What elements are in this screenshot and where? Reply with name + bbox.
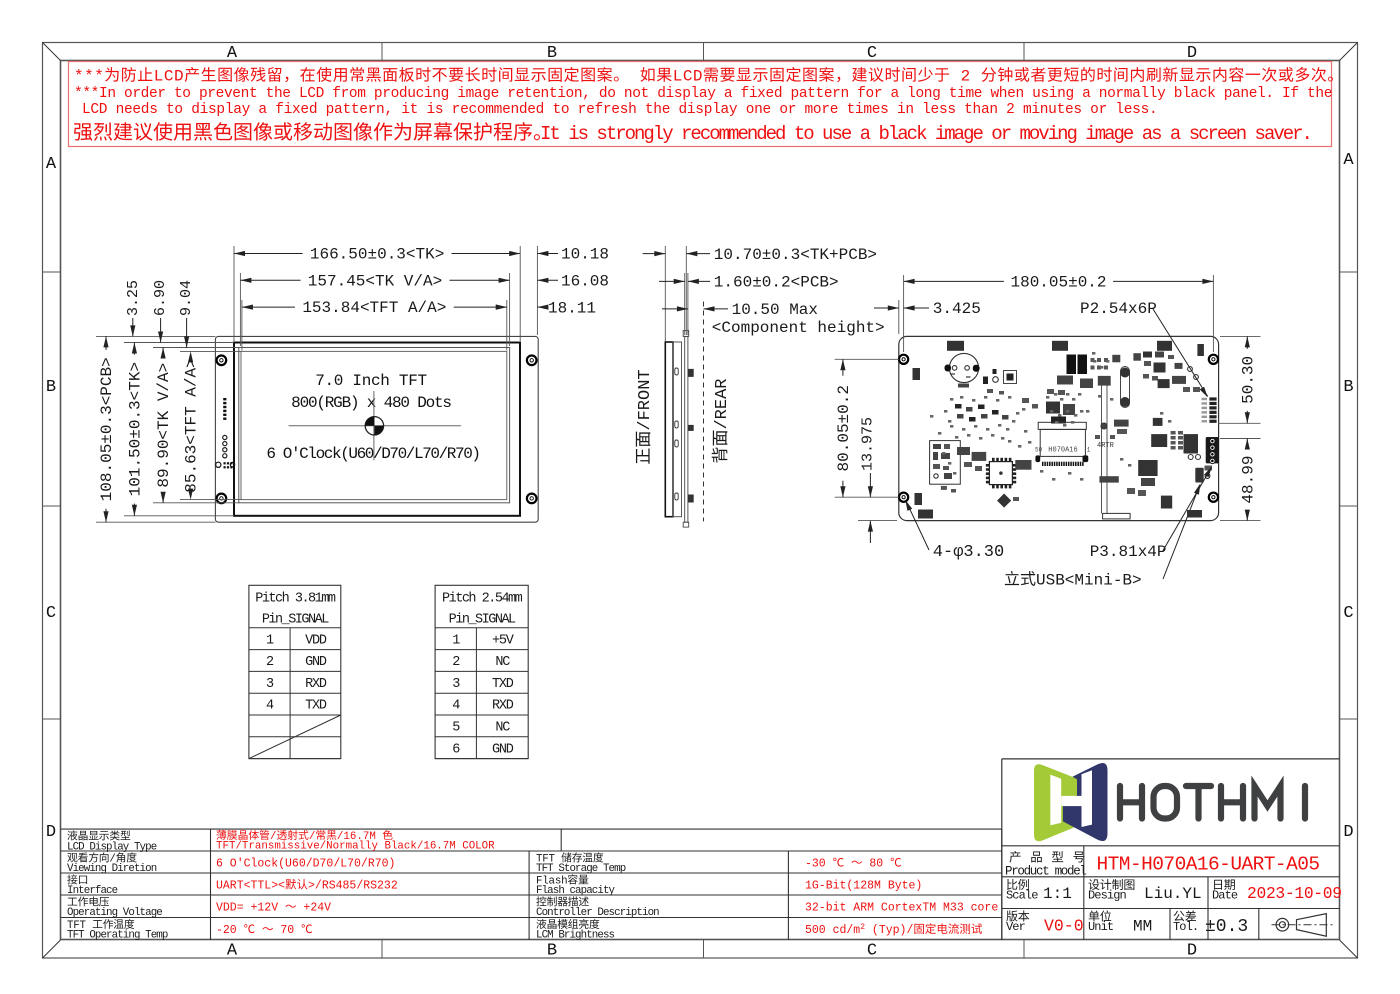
svg-text:D: D (46, 823, 56, 842)
svg-text:TXD: TXD (305, 699, 327, 714)
svg-text:±0.3: ±0.3 (1205, 917, 1248, 937)
svg-text:800(RGB) x 480 Dots: 800(RGB) x 480 Dots (291, 394, 451, 412)
svg-text:5: 5 (452, 721, 460, 736)
svg-text:V0-0: V0-0 (1044, 917, 1084, 936)
svg-text:9.04: 9.04 (178, 280, 195, 316)
svg-text:3: 3 (266, 677, 274, 692)
svg-text:6.90: 6.90 (152, 280, 169, 316)
svg-text:MM: MM (1133, 918, 1152, 936)
svg-text:6 O'Clock(U60/D70/L70/R70): 6 O'Clock(U60/D70/L70/R70) (266, 445, 479, 463)
svg-text:180.05±0.2: 180.05±0.2 (1010, 273, 1106, 291)
svg-text:1: 1 (1087, 447, 1091, 454)
svg-text:TXD: TXD (492, 677, 514, 692)
svg-text:Tol.: Tol. (1173, 920, 1198, 934)
svg-text:108.05±0.3<PCB>: 108.05±0.3<PCB> (98, 357, 116, 501)
svg-text:4: 4 (266, 699, 274, 714)
svg-text:C: C (46, 604, 56, 623)
svg-text:166.50±0.3<TK>: 166.50±0.3<TK> (310, 246, 444, 264)
svg-text:GND: GND (305, 655, 327, 670)
svg-text:3.25: 3.25 (125, 280, 142, 316)
svg-text:Interface: Interface (67, 885, 118, 897)
svg-text:A: A (227, 44, 238, 63)
svg-text:Ver: Ver (1006, 920, 1026, 934)
svg-text:NC: NC (495, 655, 510, 670)
svg-text:TFT/Transmissive/Normally Blac: TFT/Transmissive/Normally Black/16.7M CO… (216, 841, 495, 853)
svg-text:VDD: VDD (305, 633, 327, 648)
svg-text:1: 1 (266, 633, 274, 648)
svg-text:RXD: RXD (492, 699, 514, 714)
svg-text:立式USB<Mini-B>: 立式USB<Mini-B> (1004, 571, 1142, 590)
svg-text:2: 2 (452, 655, 460, 670)
svg-text:D: D (1187, 942, 1197, 961)
svg-text:Date: Date (1212, 889, 1238, 903)
svg-text:18.11: 18.11 (548, 299, 596, 317)
svg-text:89.90<TK V/A>: 89.90<TK V/A> (155, 363, 173, 488)
svg-text:32-bit ARM CortexTM M33 core: 32-bit ARM CortexTM M33 core (805, 902, 998, 915)
svg-text:10.70±0.3<TK+PCB>: 10.70±0.3<TK+PCB> (714, 246, 877, 264)
svg-text:7.0 Inch TFT: 7.0 Inch TFT (315, 372, 427, 390)
svg-text:TFT Storage Temp: TFT Storage Temp (536, 863, 626, 875)
svg-text:50: 50 (1035, 447, 1043, 454)
svg-text:VDD= +12V ～ +24V: VDD= +12V ～ +24V (216, 902, 331, 915)
svg-text:+5V: +5V (492, 633, 515, 648)
svg-text:2023-10-09: 2023-10-09 (1247, 884, 1342, 903)
svg-text:Pitch 2.54mm: Pitch 2.54mm (442, 592, 523, 607)
svg-text:D: D (1187, 44, 1197, 63)
svg-text:16.08: 16.08 (561, 273, 609, 291)
svg-text:Design: Design (1088, 889, 1127, 903)
svg-text:B: B (547, 44, 557, 63)
svg-text:RXD: RXD (305, 677, 327, 692)
svg-text:1.60±0.2<PCB>: 1.60±0.2<PCB> (714, 274, 839, 292)
svg-text:UART<TTL><默认>/RS485/RS232: UART<TTL><默认>/RS485/RS232 (216, 879, 398, 893)
svg-text:P2.54x6P: P2.54x6P (1080, 300, 1157, 318)
svg-text:1: 1 (452, 633, 460, 648)
svg-text:4RTR: 4RTR (1097, 442, 1115, 450)
svg-text:<Component height>: <Component height> (712, 319, 885, 337)
svg-text:13.975: 13.975 (860, 417, 877, 471)
svg-text:NC: NC (495, 721, 510, 736)
svg-text:LCM Brightness: LCM Brightness (536, 930, 615, 942)
svg-text:C: C (867, 44, 877, 63)
svg-text:Pitch 3.81mm: Pitch 3.81mm (255, 592, 336, 607)
svg-text:48.99: 48.99 (1239, 456, 1257, 504)
svg-text:背面/REAR: 背面/REAR (711, 378, 732, 463)
svg-text:B: B (547, 942, 557, 961)
svg-text:LCD needs to display a fixed p: LCD needs to display a fixed pattern, it… (82, 102, 1157, 118)
svg-text:***In order to prevent the LCD: ***In order to prevent the LCD from prod… (74, 86, 1332, 102)
svg-text:4: 4 (452, 699, 460, 714)
svg-text:500 cd/m2 (Typ)/固定电流测试: 500 cd/m2 (Typ)/固定电流测试 (805, 923, 983, 937)
svg-text:A: A (1343, 151, 1354, 170)
svg-text:Operating Voltage: Operating Voltage (67, 907, 162, 919)
svg-text:2: 2 (266, 655, 274, 670)
svg-text:4-φ3.30: 4-φ3.30 (933, 543, 1004, 562)
svg-text:LCD Display Type: LCD Display Type (67, 842, 157, 854)
svg-text:Viewing Diretion: Viewing Diretion (67, 863, 157, 875)
svg-text:Product model: Product model (1005, 865, 1086, 879)
svg-text:P3.81x4P: P3.81x4P (1090, 543, 1167, 561)
svg-text:C: C (867, 942, 877, 961)
svg-text:157.45<TK V/A>: 157.45<TK V/A> (308, 272, 442, 290)
svg-text:Unit: Unit (1088, 920, 1113, 934)
svg-text:产 品 型 号: 产 品 型 号 (1009, 851, 1086, 866)
svg-text:Liu.YL: Liu.YL (1144, 885, 1202, 903)
svg-text:强烈建议使用黑色图像或移动图像作为屏幕保护程序。: 强烈建议使用黑色图像或移动图像作为屏幕保护程序。 (73, 122, 553, 146)
svg-text:Pin_SIGNAL: Pin_SIGNAL (262, 613, 329, 628)
svg-text:Flash capacity: Flash capacity (536, 885, 616, 897)
svg-text:A: A (46, 155, 57, 174)
svg-text:3: 3 (452, 677, 460, 692)
svg-text:Scale: Scale (1006, 889, 1038, 903)
svg-text:3.425: 3.425 (933, 300, 981, 318)
svg-text:B: B (1343, 378, 1353, 397)
svg-text:80.05±0.2: 80.05±0.2 (835, 385, 853, 471)
svg-text:1G-Bit(128M Byte): 1G-Bit(128M Byte) (805, 880, 922, 893)
svg-text:101.50±0.3<TK>: 101.50±0.3<TK> (126, 362, 144, 496)
svg-text:A: A (227, 942, 238, 961)
svg-text:153.84<TFT A/A>: 153.84<TFT A/A> (302, 299, 446, 317)
svg-text:1:1: 1:1 (1043, 885, 1072, 903)
svg-text:50.30: 50.30 (1239, 356, 1257, 404)
svg-text:-20 ℃ ～ 70 ℃: -20 ℃ ～ 70 ℃ (216, 924, 313, 937)
svg-text:B: B (46, 378, 56, 397)
svg-text:D: D (1343, 823, 1353, 842)
svg-text:85.63<TFT A/A>: 85.63<TFT A/A> (183, 358, 201, 492)
svg-text:Controller Description: Controller Description (536, 907, 659, 919)
svg-text:HTM-H070A16-UART-A05: HTM-H070A16-UART-A05 (1097, 854, 1320, 876)
svg-text:10.50 Max: 10.50 Max (732, 301, 818, 319)
svg-text:-30 ℃ ～ 80 ℃: -30 ℃ ～ 80 ℃ (805, 858, 902, 871)
svg-text:10.18: 10.18 (561, 246, 609, 264)
svg-text:TFT Operating Temp: TFT Operating Temp (67, 930, 168, 942)
svg-text:6: 6 (452, 742, 460, 757)
svg-text:Pin_SIGNAL: Pin_SIGNAL (449, 613, 516, 628)
svg-text:***为防止LCD产生图像残留，在使用常黑面板时不要长时间显: ***为防止LCD产生图像残留，在使用常黑面板时不要长时间显示固定图案。 如果L… (74, 67, 1344, 86)
svg-text:6 O'Clock(U60/D70/L70/R70): 6 O'Clock(U60/D70/L70/R70) (216, 858, 395, 871)
svg-text:H070A16: H070A16 (1048, 447, 1077, 455)
svg-text:正面/FRONT: 正面/FRONT (635, 369, 655, 464)
svg-text:C: C (1343, 604, 1353, 623)
svg-text:GND: GND (492, 742, 514, 757)
svg-text:It is strongly recommended to: It is strongly recommended to use a blac… (540, 123, 1311, 145)
